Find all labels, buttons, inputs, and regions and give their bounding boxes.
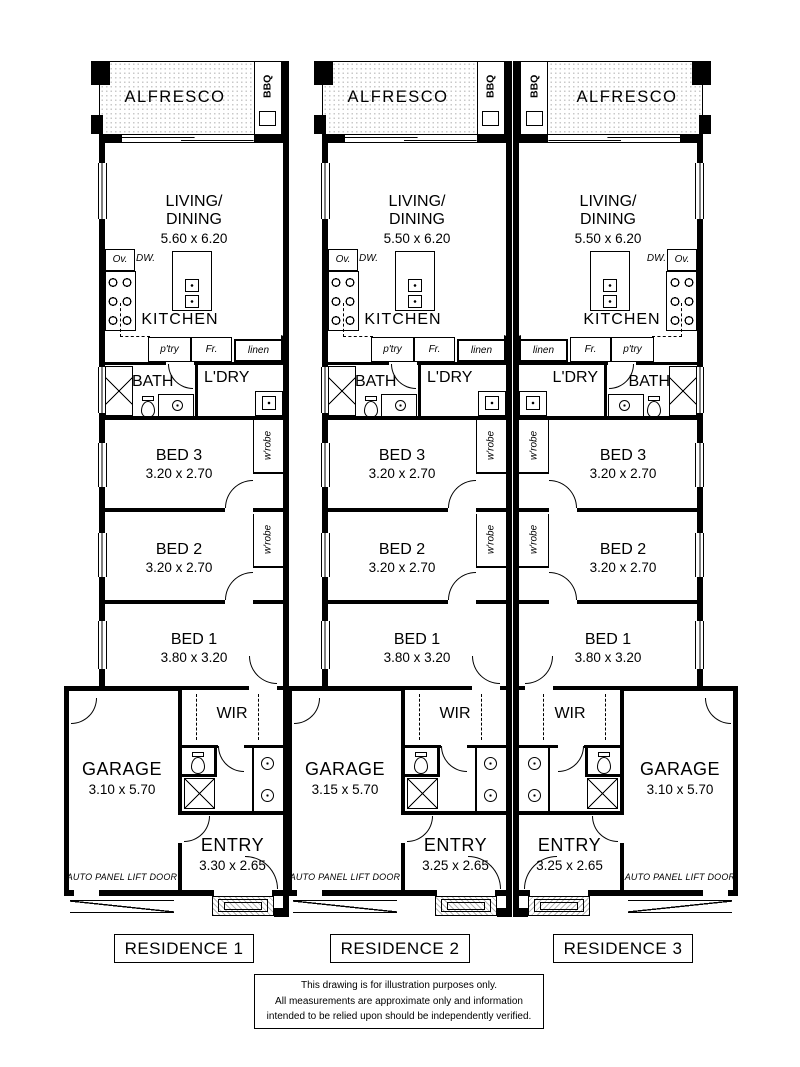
wall <box>253 508 283 512</box>
wall <box>585 748 588 776</box>
garage-dimension: 3.15 x 5.70 <box>292 782 398 798</box>
wall <box>577 508 697 512</box>
wall <box>585 774 620 777</box>
residence-2-nameplate: RESIDENCE 2 <box>330 934 470 963</box>
bed2-dimension: 3.20 x 2.70 <box>328 560 476 576</box>
fridge-label: Fr. <box>191 337 232 362</box>
garage-door-label: AUTO PANEL LIFT DOOR <box>624 872 736 882</box>
wall <box>513 134 548 143</box>
wall <box>182 811 283 815</box>
wall <box>519 686 525 690</box>
pantry-label: p'try <box>371 337 414 362</box>
robe-outline <box>543 694 544 740</box>
kitchen-label: KITCHEN <box>105 311 255 329</box>
linen-label: linen <box>457 339 506 362</box>
bath-label: BATH <box>132 373 173 391</box>
living-label-1: LIVING/ <box>519 193 697 211</box>
wall <box>699 115 711 134</box>
wardrobe-label: w'robe <box>519 420 549 471</box>
bath-label: BATH <box>629 373 670 391</box>
bed3-label: BED 3 <box>105 447 253 465</box>
garage-door-panel <box>293 900 397 913</box>
sink-icon <box>603 295 617 308</box>
living-label-2: DINING <box>519 211 697 229</box>
bed2-label: BED 2 <box>328 541 476 559</box>
wall <box>418 364 421 416</box>
wall <box>105 600 225 604</box>
bench-outline <box>652 336 682 337</box>
wall <box>728 890 738 896</box>
wall <box>519 600 549 604</box>
toilet-icon <box>414 757 428 774</box>
wall <box>214 748 217 776</box>
wall <box>437 748 440 776</box>
garage-label: GARAGE <box>69 759 175 780</box>
robe-outline <box>481 694 482 740</box>
bed2-dimension: 3.20 x 2.70 <box>549 560 697 576</box>
wardrobe-label: w'robe <box>476 420 506 471</box>
wardrobe-label: w'robe <box>253 420 283 471</box>
bed1-label: BED 1 <box>519 631 697 649</box>
wall <box>252 748 254 811</box>
sliding-door <box>122 134 254 143</box>
wall <box>195 364 198 416</box>
robe-outline <box>196 694 197 740</box>
living-label-2: DINING <box>105 211 283 229</box>
fridge-label: Fr. <box>570 337 611 362</box>
wall <box>194 362 283 365</box>
wall <box>417 362 506 365</box>
wall <box>548 748 550 811</box>
disclaimer-line: intended to be relied upon should be ind… <box>257 1009 541 1025</box>
entry-path-arrow-icon <box>514 335 521 341</box>
garage-label: GARAGE <box>627 759 733 780</box>
wall <box>476 508 506 512</box>
bed3-label: BED 3 <box>549 447 697 465</box>
bed1-label: BED 1 <box>105 631 283 649</box>
wall <box>577 600 697 604</box>
bed3-dimension: 3.20 x 2.70 <box>105 466 253 482</box>
wall <box>519 745 558 748</box>
entry-label: ENTRY <box>182 835 283 856</box>
toilet-icon <box>597 757 611 774</box>
bed2-dimension: 3.20 x 2.70 <box>105 560 253 576</box>
living-label-2: DINING <box>328 211 506 229</box>
garage-door-label: AUTO PANEL LIFT DOOR <box>289 872 401 882</box>
sink-icon <box>603 279 617 292</box>
trough-icon <box>485 396 499 410</box>
residence-3-plan: ALFRESCO BBQ LIVING/ DINING 5.50 x 6.20 … <box>505 55 740 930</box>
wall <box>513 61 521 134</box>
entry-label: ENTRY <box>519 835 620 856</box>
bed3-label: BED 3 <box>328 447 476 465</box>
wall <box>105 508 225 512</box>
robe-outline <box>419 694 420 740</box>
wall <box>328 508 448 512</box>
living-label-1: LIVING/ <box>105 193 283 211</box>
residence-2-plan: ALFRESCO BBQ LIVING/ DINING 5.50 x 6.20 … <box>285 55 520 930</box>
alfresco-label: ALFRESCO <box>104 88 246 107</box>
wall <box>636 362 697 365</box>
basin-icon <box>172 400 183 411</box>
basin-icon <box>528 789 541 802</box>
residence-1-nameplate: RESIDENCE 1 <box>114 934 254 963</box>
entry-path-arrow <box>264 339 281 340</box>
wall <box>314 61 333 85</box>
sink-icon <box>185 279 199 292</box>
shower-icon <box>328 366 356 416</box>
entry-path-arrow <box>521 339 538 340</box>
entry-label: ENTRY <box>405 835 506 856</box>
bench-outline <box>120 336 150 337</box>
dishwasher-label: DW. <box>136 253 155 265</box>
living-dimension: 5.60 x 6.20 <box>105 231 283 247</box>
alfresco-label: ALFRESCO <box>556 88 698 107</box>
laundry-label: L'DRY <box>553 369 598 387</box>
dishwasher-label: DW. <box>647 253 666 265</box>
alfresco-label: ALFRESCO <box>327 88 469 107</box>
wall <box>253 600 283 604</box>
wall <box>322 890 437 896</box>
bed1-label: BED 1 <box>328 631 506 649</box>
bed3-dimension: 3.20 x 2.70 <box>328 466 476 482</box>
shower-icon <box>407 778 438 809</box>
porch-step <box>540 902 578 910</box>
pantry-label: p'try <box>611 337 654 362</box>
wall <box>99 134 122 143</box>
wall <box>680 134 703 143</box>
wall <box>182 774 217 777</box>
wall <box>244 745 283 748</box>
basin-icon <box>261 789 274 802</box>
sink-icon <box>408 279 422 292</box>
bbq-unit <box>526 111 543 126</box>
garage-dimension: 3.10 x 5.70 <box>69 782 175 798</box>
toilet-icon <box>191 757 205 774</box>
bbq-label: BBQ <box>477 65 504 107</box>
wall <box>314 115 326 134</box>
shower-icon <box>669 366 697 416</box>
wall <box>604 364 607 416</box>
basin-icon <box>484 757 497 770</box>
shower-icon <box>105 366 133 416</box>
living-label-1: LIVING/ <box>328 193 506 211</box>
wall <box>519 508 549 512</box>
laundry-label: L'DRY <box>204 369 249 387</box>
wall <box>182 745 218 748</box>
trough-icon <box>262 396 276 410</box>
bbq-unit <box>259 111 276 126</box>
bbq-label: BBQ <box>521 65 548 107</box>
kitchen-label: KITCHEN <box>328 311 478 329</box>
laundry-label: L'DRY <box>427 369 472 387</box>
pantry-label: p'try <box>148 337 191 362</box>
porch-step <box>447 902 485 910</box>
bed2-label: BED 2 <box>549 541 697 559</box>
basin-icon <box>484 789 497 802</box>
wall <box>405 774 440 777</box>
bench-outline <box>343 336 373 337</box>
oven-label: Ov. <box>105 249 135 271</box>
wall <box>475 748 477 811</box>
garage-door-panel <box>628 900 732 913</box>
wall <box>277 686 283 690</box>
bed3-dimension: 3.20 x 2.70 <box>549 466 697 482</box>
living-dimension: 5.50 x 6.20 <box>519 231 697 247</box>
trough-icon <box>526 396 540 410</box>
robe-outline <box>258 694 259 740</box>
shower-icon <box>587 778 618 809</box>
wardrobe-label: w'robe <box>476 514 506 565</box>
wir-label: WIR <box>182 705 282 723</box>
wall <box>91 115 103 134</box>
basin-icon <box>528 757 541 770</box>
wall <box>287 890 297 896</box>
living-dimension: 5.50 x 6.20 <box>328 231 506 247</box>
floorplan-drawing: ALFRESCO BBQ LIVING/ DINING 5.60 x 6.20 … <box>0 0 800 1067</box>
sink-icon <box>408 295 422 308</box>
disclaimer-box: This drawing is for illustration purpose… <box>254 974 544 1029</box>
wall <box>91 61 110 85</box>
fridge-label: Fr. <box>414 337 455 362</box>
wir-label: WIR <box>405 705 505 723</box>
bbq-label: BBQ <box>254 65 281 107</box>
basin-icon <box>619 400 630 411</box>
wall <box>105 362 166 365</box>
wardrobe-label: w'robe <box>253 514 283 565</box>
sink-icon <box>185 295 199 308</box>
bed2-label: BED 2 <box>105 541 253 559</box>
disclaimer-line: All measurements are approximate only an… <box>257 994 541 1010</box>
wall <box>405 745 441 748</box>
basin-icon <box>395 400 406 411</box>
wall <box>64 890 74 896</box>
wall <box>553 686 620 690</box>
residence-1-plan: ALFRESCO BBQ LIVING/ DINING 5.60 x 6.20 … <box>62 55 297 930</box>
garage-label: GARAGE <box>292 759 398 780</box>
porch-step <box>224 902 262 910</box>
wall <box>588 890 703 896</box>
shower-icon <box>184 778 215 809</box>
linen-label: linen <box>519 339 568 362</box>
wall <box>182 686 249 690</box>
linen-label: linen <box>234 339 283 362</box>
wall <box>328 600 448 604</box>
wall <box>519 811 620 815</box>
entry-path-arrow <box>487 339 504 340</box>
sliding-door <box>345 134 477 143</box>
sliding-door <box>548 134 680 143</box>
bbq-unit <box>482 111 499 126</box>
wall <box>519 362 608 365</box>
oven-label: Ov. <box>667 249 697 271</box>
wall <box>405 811 506 815</box>
oven-label: Ov. <box>328 249 358 271</box>
bath-label: BATH <box>355 373 396 391</box>
garage-dimension: 3.10 x 5.70 <box>627 782 733 798</box>
wall <box>513 908 528 917</box>
garage-door-label: AUTO PANEL LIFT DOOR <box>66 872 178 882</box>
robe-outline <box>605 694 606 740</box>
disclaimer-line: This drawing is for illustration purpose… <box>257 978 541 994</box>
wall <box>254 134 289 143</box>
garage-door-panel <box>70 900 174 913</box>
wall <box>467 745 506 748</box>
dishwasher-label: DW. <box>359 253 378 265</box>
kitchen-label: KITCHEN <box>547 311 697 329</box>
wall <box>99 890 214 896</box>
residence-3-nameplate: RESIDENCE 3 <box>553 934 693 963</box>
wall <box>328 362 389 365</box>
wall <box>476 600 506 604</box>
wall <box>584 745 620 748</box>
wall <box>405 686 472 690</box>
wall <box>692 61 711 85</box>
wall <box>322 134 345 143</box>
wardrobe-label: w'robe <box>519 514 549 565</box>
basin-icon <box>261 757 274 770</box>
